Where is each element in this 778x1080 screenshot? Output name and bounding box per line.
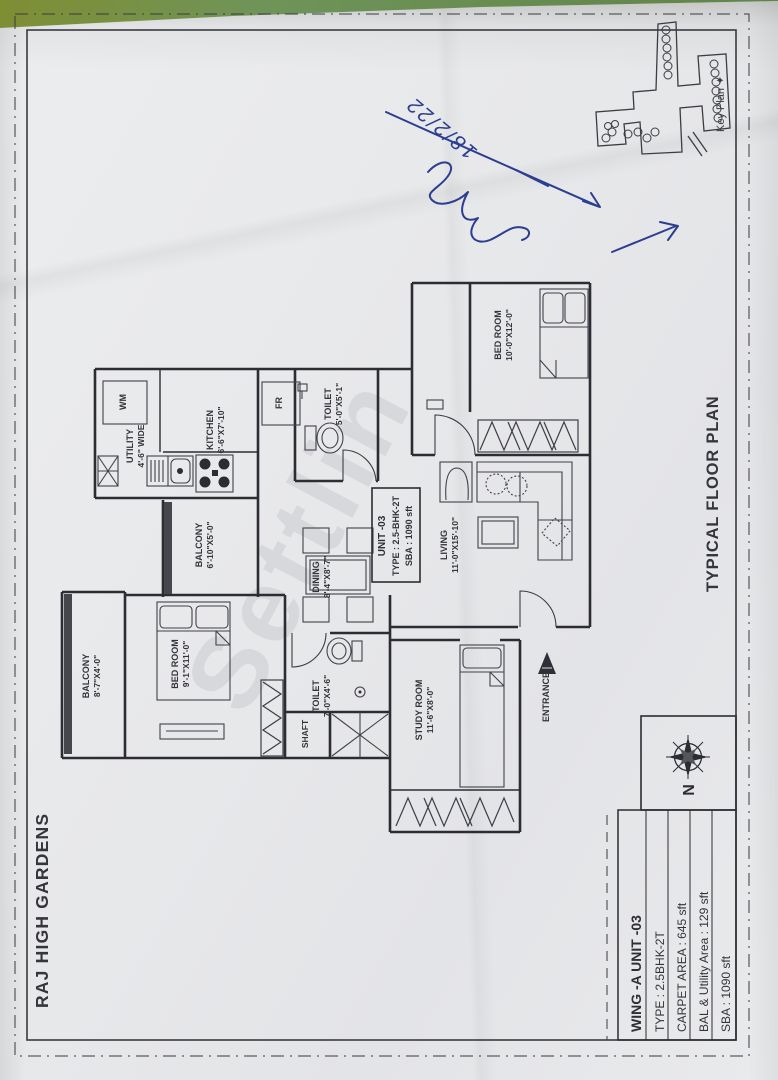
table-row-type: TYPE : 2.5BHK-2T [653,931,667,1032]
north-label: N [681,784,698,796]
signature-underline [386,112,600,207]
label-study-name: STUDY ROOM [414,680,424,741]
key-plan-road-marks [688,132,707,156]
label-balcony-mid-name: BALCONY [194,523,204,568]
label-shaft: SHAFT [300,719,310,748]
label-kitchen-dim: 6'-6"X7'-10" [216,406,226,453]
label-study-dim: 11'-6"X8'-0" [425,687,435,734]
key-plan [596,22,730,156]
handwritten-date: 18/2/22 [402,92,481,164]
label-toilet2-name: TOILET [311,680,321,712]
label-utility-name: UTILITY [125,429,135,463]
unit-info-table: WING -A UNIT -03 TYPE : 2.5BHK-2T CARPET… [618,810,736,1040]
unit-box-line3: SBA : 1090 sft [404,506,414,566]
label-balcony-mid-dim: 6'-10"X5'-0" [205,521,215,568]
floor-plan-sheet: Settlin RAJ HIGH GARDENS TYPICAL FLOOR P… [0,0,778,1080]
label-utility-dim: 4'-6" WIDE [136,424,146,467]
table-row-bal: BAL & Utility Area : 129 sft [697,891,711,1032]
balcony-railings [64,502,172,754]
table-title: WING -A UNIT -03 [628,915,644,1032]
stove-icon [196,455,233,492]
vent-icon [98,456,118,486]
label-entrance: ENTRANCE [541,672,551,722]
label-bedroom1-dim: 10'-0"X12'-0" [504,309,514,361]
table-row-sba: SBA : 1090 sft [719,955,733,1032]
label-dining-dim: 8'-4"X8'-7" [322,556,332,598]
table-row-carpet: CARPET AREA : 645 sft [675,902,689,1032]
project-title: RAJ HIGH GARDENS [32,813,52,1008]
label-toilet1-dim: 5'-0"X5'-1" [334,383,344,425]
sink-icon [147,456,193,486]
label-kitchen-name: KITCHEN [205,410,215,450]
sofa-icon [477,462,572,560]
label-toilet2-dim: 7'-0"X4'-6" [322,675,332,717]
study-balcony-railing [396,798,514,826]
label-bedroom2-name: BED ROOM [170,639,180,689]
wc-icon-toilet2 [327,638,365,697]
label-living-name: LIVING [439,530,449,560]
plan-title: TYPICAL FLOOR PLAN [704,395,722,592]
dresser-icon [160,724,224,739]
shower-icon [332,712,388,758]
label-living-dim: 11'-0"X15'-10" [450,517,460,573]
label-wm: WM [118,394,128,410]
armchair-icon [440,462,472,502]
coffee-table-icon [478,517,518,548]
unit-box-line2: TYPE : 2.5-BHK-2T [391,495,401,576]
unit-box-line1: UNIT -03 [377,515,388,556]
label-bedroom1-name: BED ROOM [493,310,503,360]
bed-icon-bedroom1 [540,289,588,378]
label-toilet1-name: TOILET [323,388,333,420]
key-plan-label: Key Plan ✦ [715,76,727,132]
signature-stroke [428,162,529,241]
handwritten-annotation: 18/2/22 [386,92,678,252]
label-dining-name: DINING [311,561,321,593]
entrance-arrow-icon [538,652,556,674]
signature-tail [516,170,678,252]
bed-icon-study [460,645,504,787]
label-fr: FR [274,397,284,409]
label-balcony-left-dim: 8'-7"X4'-0" [92,655,102,697]
label-balcony-left-name: BALCONY [81,654,91,699]
label-bedroom2-dim: 9'-1"X11'-0" [181,641,191,688]
